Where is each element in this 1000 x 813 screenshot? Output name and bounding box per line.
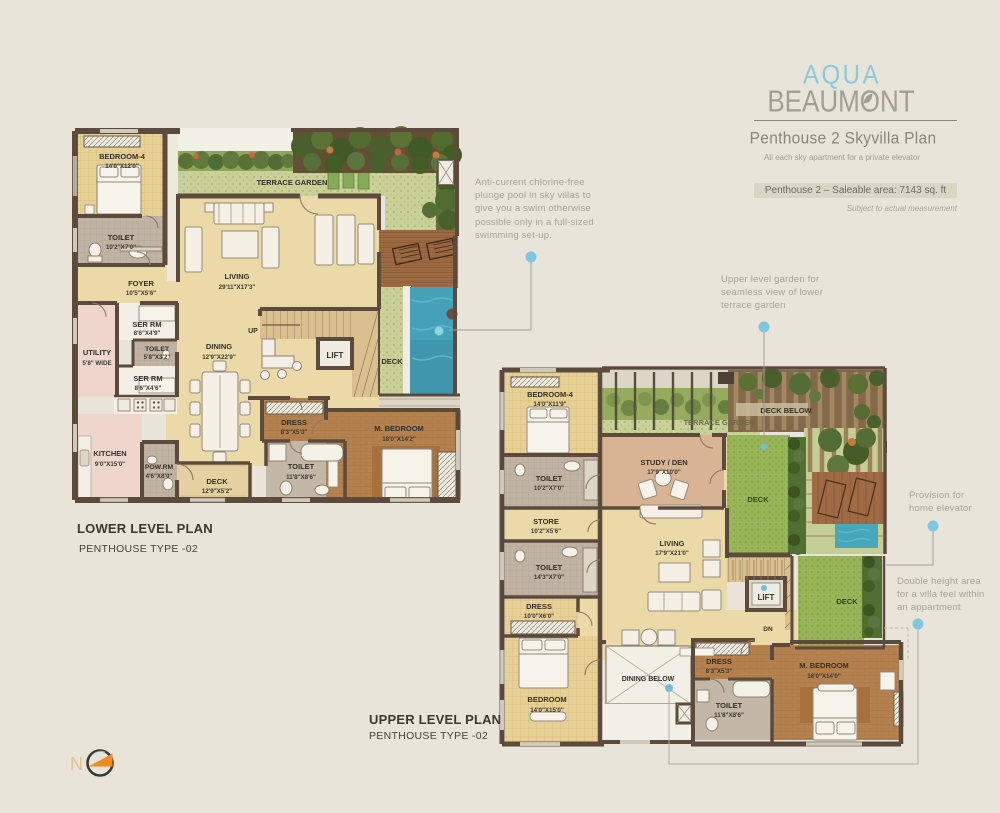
svg-text:N: N <box>70 754 83 774</box>
